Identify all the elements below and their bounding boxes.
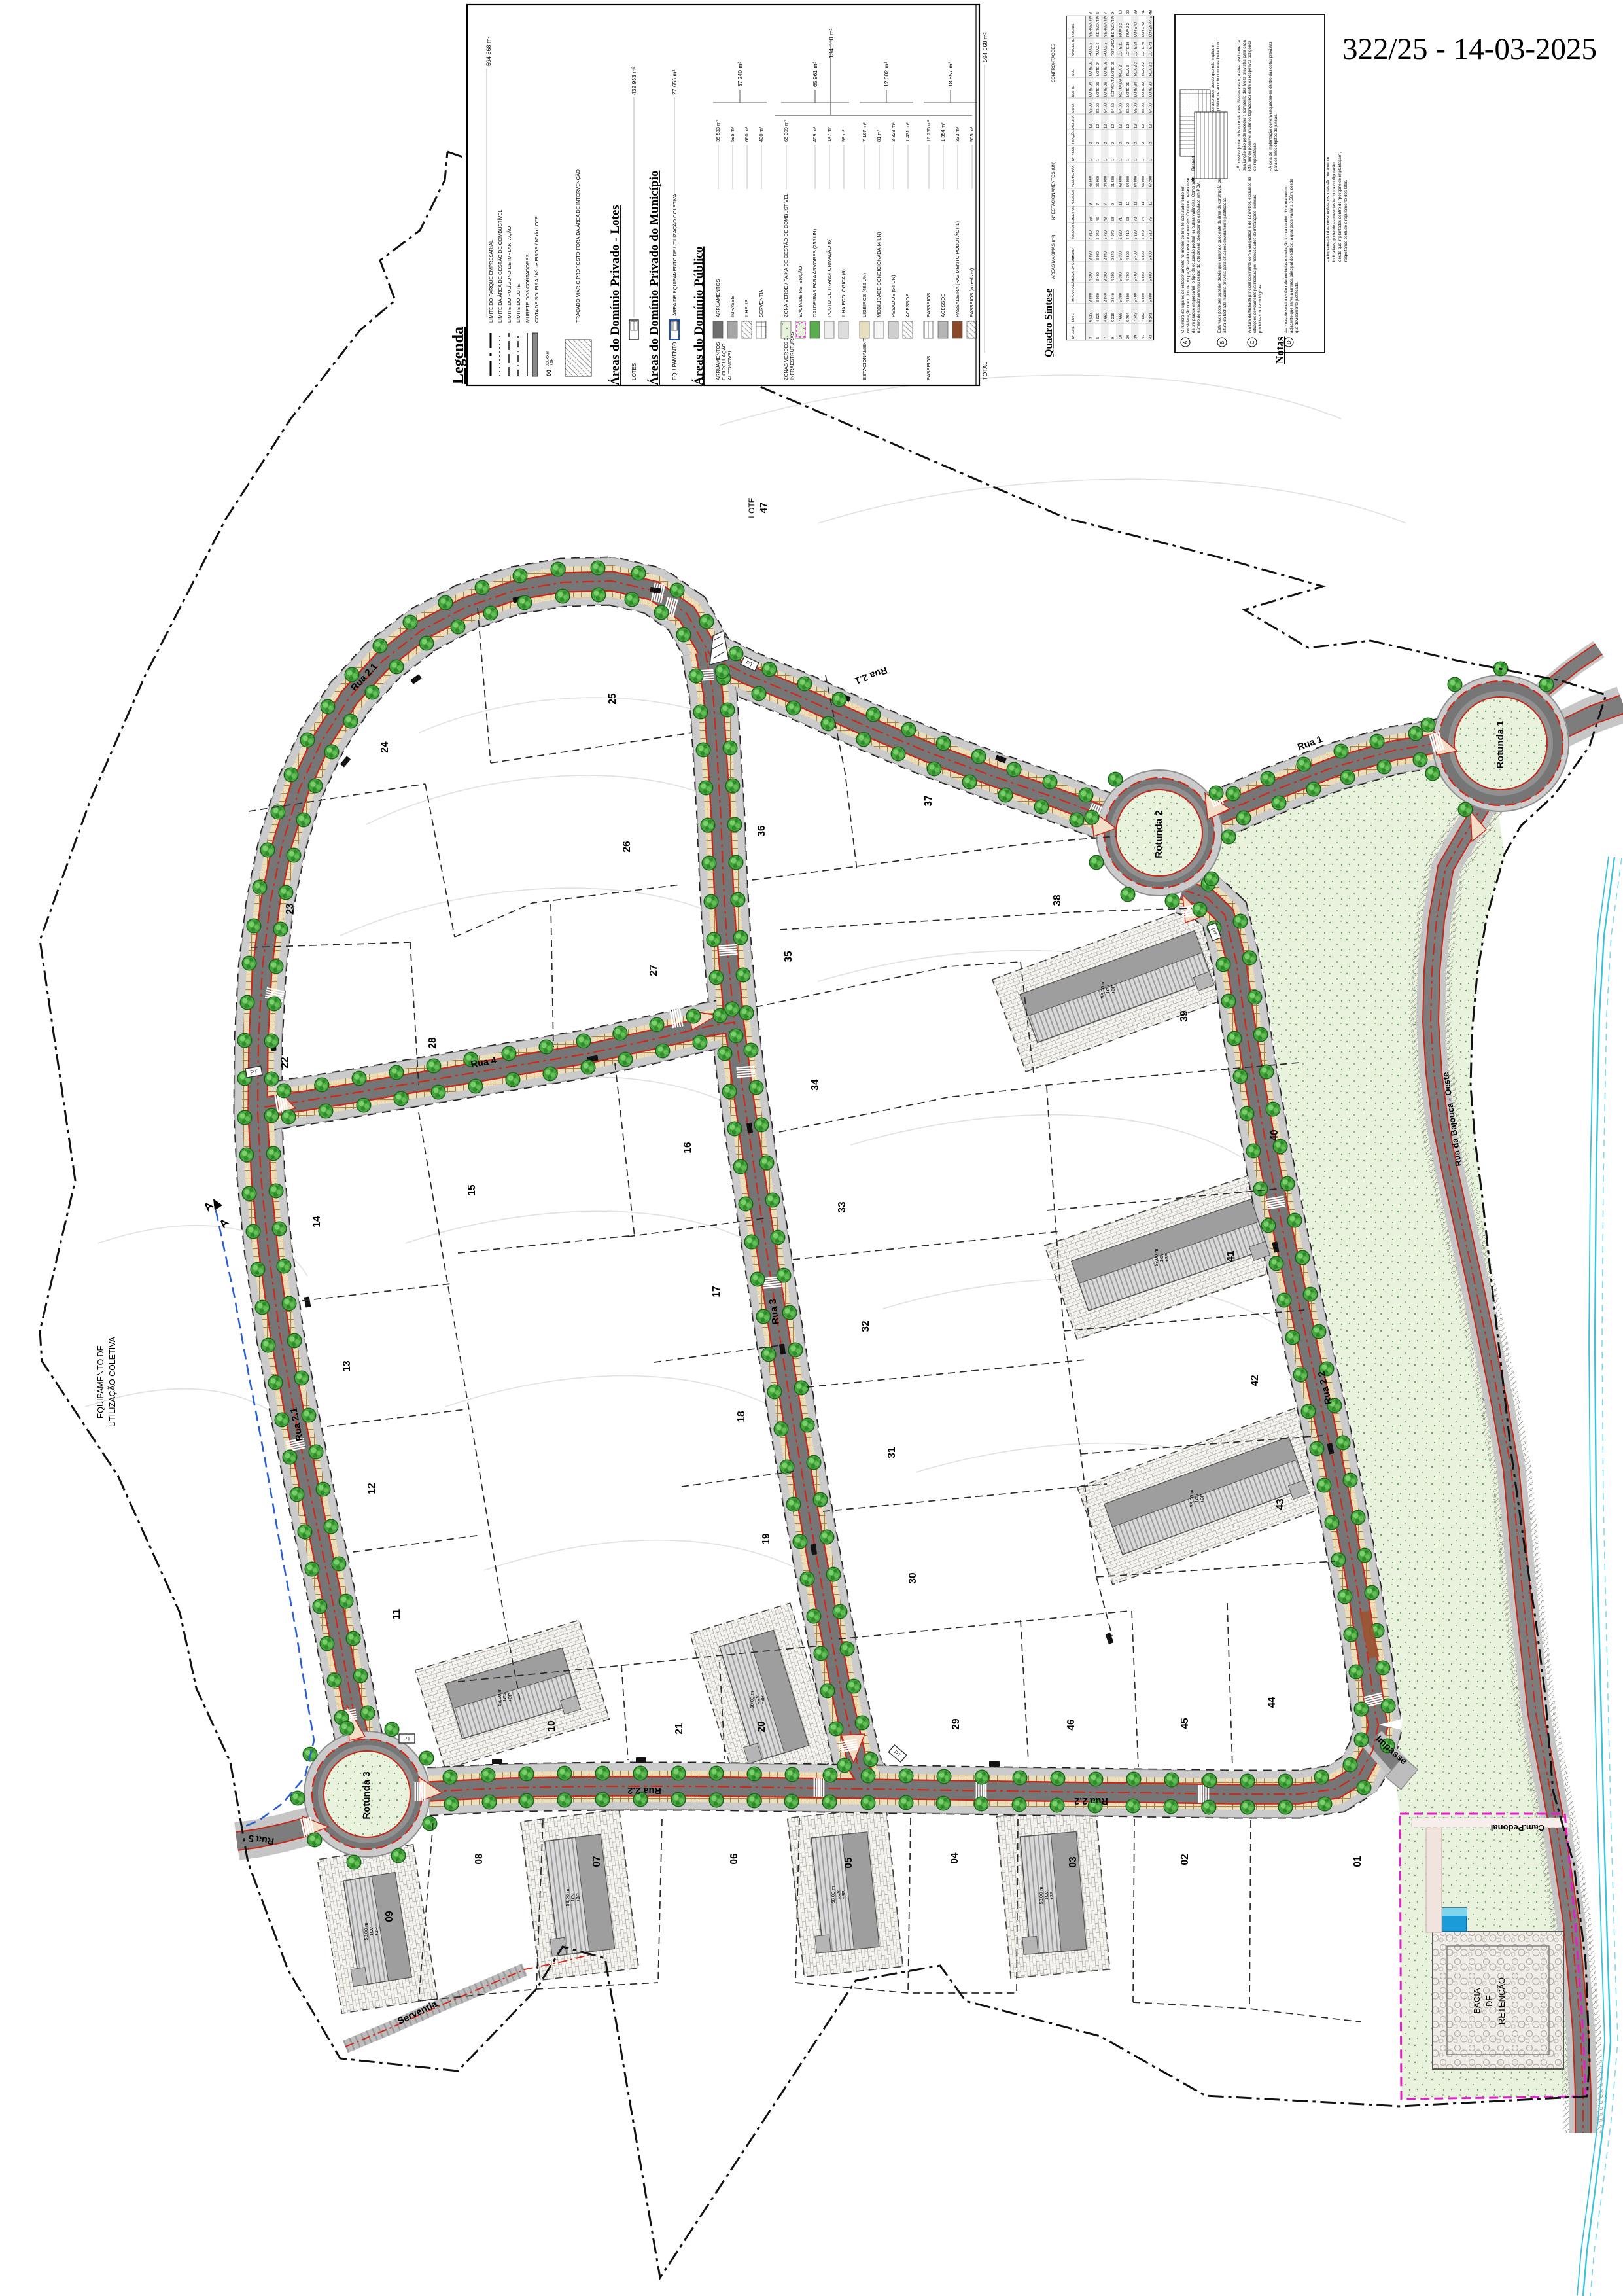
svg-text:As cotas de soleira estão refe: As cotas de soleira estão referenciadas …	[1284, 187, 1289, 333]
svg-text:ROTUNDA 3: ROTUNDA 3	[1119, 76, 1123, 97]
svg-text:53.00: 53.00	[1089, 103, 1093, 113]
svg-text:UTILIZAÇÃO COLETIVA: UTILIZAÇÃO COLETIVA	[108, 1336, 117, 1427]
svg-text:ROTUNDA 3: ROTUNDA 3	[1111, 35, 1115, 56]
svg-text:LOTE 06: LOTE 06	[1104, 82, 1108, 97]
svg-text:39: 39	[1134, 335, 1138, 339]
svg-text:+XP: +XP	[550, 358, 554, 366]
svg-text:3: 3	[1089, 337, 1093, 339]
svg-text:2: 2	[1149, 142, 1153, 144]
svg-text:1: 1	[1096, 159, 1100, 161]
svg-text:A altura da fachada principal: A altura da fachada principal confinante…	[1248, 177, 1252, 333]
svg-text:54.00: 54.00	[1119, 103, 1123, 113]
svg-text:4 500: 4 500	[1126, 251, 1130, 260]
svg-text:7: 7	[1104, 337, 1108, 339]
svg-text:5 600: 5 600	[1149, 251, 1153, 260]
svg-text:BACIA DE RETENÇÃO: BACIA DE RETENÇÃO	[797, 266, 803, 317]
svg-text:147 m²: 147 m²	[826, 126, 832, 142]
svg-text:9: 9	[1089, 203, 1093, 205]
svg-text:RUA 2.2: RUA 2.2	[1119, 23, 1123, 37]
svg-text:660 m²: 660 m²	[744, 126, 750, 142]
svg-text:+3P: +3P	[507, 1693, 513, 1702]
svg-text:+3P: +3P	[1164, 1253, 1170, 1262]
svg-text:6 764: 6 764	[1126, 313, 1130, 322]
svg-text:PT: PT	[403, 1736, 411, 1742]
svg-text:12: 12	[1111, 124, 1115, 128]
svg-text:SERVENTIA: SERVENTIA	[1089, 16, 1093, 37]
svg-text:46: 46	[1066, 1719, 1077, 1731]
svg-text:LOTE 42: LOTE 42	[1142, 22, 1145, 37]
svg-text:7 743: 7 743	[1134, 313, 1138, 322]
svg-text:43: 43	[1149, 10, 1153, 14]
svg-text:25: 25	[607, 693, 618, 705]
svg-text:39: 39	[1134, 10, 1138, 14]
svg-text:ACESSOS: ACESSOS	[940, 294, 946, 317]
svg-text:58: 58	[1111, 217, 1115, 221]
svg-text:63: 63	[1126, 217, 1130, 221]
svg-text:12: 12	[1119, 124, 1123, 128]
svg-text:54.00: 54.00	[1104, 103, 1108, 113]
svg-text:44: 44	[1266, 1697, 1278, 1708]
svg-text:PESADOS: PESADOS	[1072, 189, 1075, 205]
svg-text:1: 1	[1149, 159, 1153, 161]
svg-text:- A implantação das construçõe: - A implantação das construções nos lote…	[1326, 156, 1331, 262]
svg-text:09: 09	[384, 1911, 395, 1922]
svg-text:desde que implantadas dentro d: desde que implantadas dentro do "polígon…	[1338, 152, 1342, 262]
svg-text:01: 01	[1352, 1856, 1363, 1867]
svg-text:+3P: +3P	[575, 1893, 581, 1902]
svg-text:B: B	[1219, 341, 1225, 344]
svg-text:58.00: 58.00	[1134, 103, 1138, 113]
svg-text:número de estacionamentos dent: número de estacionamentos dentro do lote…	[1196, 181, 1201, 333]
svg-text:5 400: 5 400	[1134, 293, 1138, 302]
svg-text:SERVENTIA: SERVENTIA	[1111, 16, 1115, 37]
svg-text:2: 2	[1111, 142, 1115, 144]
svg-text:INFRAESTRUTURAS: INFRAESTRUTURAS	[789, 332, 795, 380]
svg-text:4 810: 4 810	[1089, 230, 1093, 239]
svg-text:7: 7	[1104, 12, 1108, 14]
svg-text:3 720: 3 720	[1104, 230, 1108, 239]
svg-text:40: 40	[1269, 1129, 1280, 1140]
svg-text:9: 9	[1111, 203, 1115, 205]
svg-text:6 370: 6 370	[1142, 230, 1145, 239]
svg-text:SERVENTIA: SERVENTIA	[1096, 16, 1100, 37]
svg-text:58.00: 58.00	[1142, 103, 1145, 113]
svg-text:13: 13	[341, 1360, 353, 1372]
svg-text:35: 35	[783, 951, 794, 963]
svg-text:2 840: 2 840	[1104, 293, 1108, 302]
svg-text:RUA 2.2: RUA 2.2	[1126, 23, 1130, 37]
svg-text:54 000: 54 000	[1126, 176, 1130, 187]
svg-text:594 668 m²: 594 668 m²	[485, 36, 492, 66]
svg-text:3 080: 3 080	[1096, 293, 1100, 302]
svg-text:LIGEIROS (482 UN): LIGEIROS (482 UN)	[862, 273, 867, 317]
svg-text:43: 43	[1104, 217, 1108, 221]
svg-text:Rua 2.2: Rua 2.2	[627, 1785, 661, 1795]
svg-text:LIMITE DO LOTE: LIMITE DO LOTE	[515, 284, 521, 323]
svg-text:LOTE 42: LOTE 42	[1149, 42, 1153, 56]
svg-text:ARRUAMENTOS: ARRUAMENTOS	[715, 342, 721, 380]
svg-text:RUA 2.2: RUA 2.2	[1104, 43, 1108, 56]
svg-text:E CIRCULAÇÃO: E CIRCULAÇÃO	[721, 344, 727, 380]
svg-text:LOTE 04: LOTE 04	[1089, 82, 1093, 97]
svg-text:1: 1	[1119, 159, 1123, 161]
svg-text:31 680: 31 680	[1111, 176, 1115, 187]
svg-text:36: 36	[756, 825, 767, 837]
svg-text:05: 05	[843, 1857, 854, 1869]
svg-text:2: 2	[1096, 142, 1100, 144]
svg-text:4 300: 4 300	[1111, 272, 1115, 281]
svg-text:- É possível juntar dois ou ma: - É possível juntar dois ou mais lotes. …	[1237, 40, 1242, 171]
svg-text:ZONAS VERDES E: ZONAS VERDES E	[783, 337, 789, 380]
svg-text:EQUIPAMENTO: EQUIPAMENTO	[672, 342, 678, 380]
svg-text:29: 29	[951, 1718, 962, 1730]
svg-text:5: 5	[1096, 12, 1100, 14]
svg-text:74: 74	[1142, 217, 1145, 221]
svg-text:6 013: 6 013	[1089, 313, 1093, 322]
svg-text:3 940: 3 940	[1096, 230, 1100, 239]
svg-text:respeitando contudo o regulame: respeitando contudo o regulamento dos lo…	[1344, 179, 1348, 262]
svg-text:12: 12	[1126, 124, 1130, 128]
svg-text:18 857 m²: 18 857 m²	[947, 62, 954, 87]
svg-text:RETENÇÃO: RETENÇÃO	[1497, 1977, 1507, 2024]
svg-text:24: 24	[379, 741, 391, 753]
svg-text:ÁREA DE EQUIPAMENTO DE UTILIZA: ÁREA DE EQUIPAMENTO DE UTILIZAÇÃO COLETI…	[672, 194, 678, 316]
svg-text:ILHA ECOLÓGICA (6): ILHA ECOLÓGICA (6)	[841, 269, 846, 317]
svg-text:IMPASSE: IMPASSE	[729, 296, 735, 317]
svg-text:595 m²: 595 m²	[729, 126, 735, 142]
svg-text:2 640: 2 640	[1111, 293, 1115, 302]
svg-text:1: 1	[1104, 159, 1108, 161]
svg-text:consideração que o tipo de ocu: consideração que o tipo de ocupação será…	[1186, 177, 1191, 333]
svg-text:16 265 m²: 16 265 m²	[926, 120, 932, 142]
svg-text:MURETE DOS CONTADORES: MURETE DOS CONTADORES	[525, 255, 531, 323]
svg-text:3 080: 3 080	[1096, 251, 1100, 260]
svg-text:2: 2	[1104, 142, 1108, 144]
svg-text:LOTE 02: LOTE 02	[1089, 62, 1093, 76]
svg-text:ALTURA: ALTURA	[1072, 115, 1075, 128]
svg-text:6 215: 6 215	[1111, 313, 1115, 322]
svg-text:10: 10	[1126, 202, 1130, 205]
svg-text:LIMITE DO POLÍGONO DE IMPLANTA: LIMITE DO POLÍGONO DE IMPLANTAÇÃO	[506, 226, 512, 323]
svg-text:LIMITE DO PARQUE EMPRESARIAL: LIMITE DO PARQUE EMPRESARIAL	[488, 240, 494, 323]
svg-text:LOTE 30: LOTE 30	[1149, 82, 1153, 97]
svg-text:16: 16	[682, 1142, 693, 1154]
svg-text:Rua 2.2: Rua 2.2	[1074, 1795, 1108, 1806]
svg-text:9: 9	[1111, 337, 1115, 339]
svg-text:D: D	[1286, 340, 1292, 344]
svg-text:Nº PISOS: Nº PISOS	[1072, 146, 1075, 161]
svg-text:RUA 2.2: RUA 2.2	[1096, 43, 1100, 56]
svg-text:A: A	[1183, 340, 1189, 344]
svg-text:que devidamente justificada.: que devidamente justificada.	[1295, 281, 1299, 333]
svg-text:36 960: 36 960	[1096, 176, 1100, 187]
svg-text:2: 2	[1134, 142, 1138, 144]
svg-text:PASSEIOS: PASSEIOS	[926, 293, 932, 317]
svg-text:2: 2	[1089, 142, 1093, 144]
svg-text:RUA 2.2: RUA 2.2	[1134, 62, 1138, 76]
svg-text:9: 9	[1111, 12, 1115, 14]
svg-text:12: 12	[1089, 124, 1093, 128]
svg-text:+3P: +3P	[374, 1927, 379, 1936]
svg-text:Legenda: Legenda	[450, 327, 467, 384]
svg-text:RUA 2: RUA 2	[1119, 65, 1123, 76]
svg-text:5 600: 5 600	[1149, 293, 1153, 302]
svg-text:4 200: 4 200	[1089, 272, 1093, 281]
svg-text:10: 10	[546, 1720, 557, 1731]
svg-text:7 669: 7 669	[1119, 313, 1123, 322]
svg-text:43: 43	[1275, 1498, 1286, 1510]
svg-text:43: 43	[1149, 335, 1153, 339]
svg-text:47: 47	[758, 503, 769, 514]
svg-text:NASCENTE: NASCENTE	[1072, 38, 1075, 56]
svg-text:LOTE: LOTE	[1072, 313, 1075, 322]
svg-text:333 m²: 333 m²	[954, 126, 960, 142]
svg-text:20: 20	[1126, 10, 1130, 14]
svg-text:CALDEIRAS PARA ÁRVORES (255 UN: CALDEIRAS PARA ÁRVORES (255 UN)	[812, 228, 818, 317]
svg-text:00: 00	[546, 370, 552, 376]
svg-text:06: 06	[729, 1853, 740, 1865]
svg-text:5 500: 5 500	[1142, 251, 1145, 260]
svg-text:1: 1	[1111, 159, 1115, 161]
svg-text:ÁREAS MÁXIMAS (m²): ÁREAS MÁXIMAS (m²)	[1050, 234, 1056, 279]
svg-text:COTA: COTA	[1072, 103, 1075, 113]
svg-text:4 662: 4 662	[1104, 313, 1108, 322]
svg-text:11: 11	[1119, 202, 1123, 205]
svg-text:LOTE 32: LOTE 32	[1142, 82, 1145, 97]
svg-text:63 600: 63 600	[1119, 176, 1123, 187]
svg-text:12: 12	[1096, 124, 1100, 128]
svg-text:ESTACIONAMENTO: ESTACIONAMENTO	[862, 334, 867, 380]
svg-text:75: 75	[1149, 217, 1153, 221]
svg-text:34: 34	[810, 1079, 821, 1091]
svg-text:Rotunda 1: Rotunda 1	[1495, 720, 1506, 768]
svg-text:7 982: 7 982	[1142, 313, 1145, 322]
svg-text:02: 02	[1179, 1854, 1191, 1865]
svg-text:ARRUAMENTOS: ARRUAMENTOS	[715, 279, 721, 317]
svg-text:1: 1	[1126, 159, 1130, 161]
svg-text:11: 11	[1134, 202, 1138, 205]
svg-text:C: C	[1249, 340, 1255, 344]
svg-text:LOTE 34: LOTE 34	[1134, 82, 1138, 97]
svg-text:6 180: 6 180	[1134, 230, 1138, 239]
svg-text:1 354 m²: 1 354 m²	[940, 122, 946, 142]
svg-text:12 002 m²: 12 002 m²	[883, 62, 890, 87]
svg-text:de implantação.: de implantação.	[1253, 142, 1257, 171]
svg-text:3: 3	[1089, 12, 1093, 14]
svg-text:5 400: 5 400	[1134, 272, 1138, 281]
svg-text:38: 38	[1052, 894, 1063, 906]
svg-text:altura da fachada máxima previ: altura da fachada máxima prevista para s…	[1223, 197, 1227, 333]
svg-text:12: 12	[1149, 202, 1153, 205]
svg-text:56: 56	[1089, 217, 1093, 221]
svg-text:- A cota de implantação deverá: - A cota de implantação deverá enquadrar…	[1268, 42, 1273, 171]
svg-text:33: 33	[837, 1201, 848, 1213]
svg-text:Cam.Pedonal: Cam.Pedonal	[1491, 1823, 1544, 1833]
svg-text:Rotunda 2: Rotunda 2	[1153, 810, 1164, 858]
svg-text:5 600: 5 600	[1149, 272, 1153, 281]
svg-text:CONFRONTAÇÕES: CONFRONTAÇÕES	[1050, 43, 1056, 82]
svg-text:+3P: +3P	[841, 1890, 846, 1899]
svg-text:4 700: 4 700	[1126, 272, 1130, 281]
svg-text:30: 30	[907, 1572, 918, 1583]
svg-text:sua junção não pode exceder o: sua junção não pode exceder o somatório …	[1242, 40, 1247, 171]
svg-text:14: 14	[311, 1216, 323, 1227]
svg-text:3 880: 3 880	[1089, 293, 1093, 302]
svg-text:7: 7	[1096, 203, 1100, 205]
svg-text:Quadro Síntese: Quadro Síntese	[1043, 289, 1055, 357]
svg-text:1: 1	[1089, 159, 1093, 161]
svg-text:5 410: 5 410	[1126, 230, 1130, 239]
svg-text:6 510: 6 510	[1149, 230, 1153, 239]
svg-text:Áreas do Domínio Privado - Lot: Áreas do Domínio Privado - Lotes	[608, 205, 622, 385]
svg-text:5 400: 5 400	[1134, 251, 1138, 260]
svg-text:PESADOS (54 UN): PESADOS (54 UN)	[890, 275, 896, 317]
svg-text:37: 37	[923, 795, 934, 806]
svg-text:PT: PT	[250, 1068, 259, 1076]
svg-text:TRAÇADO VIÁRIO PROPOSTO FORA D: TRAÇADO VIÁRIO PROPOSTO FORA DA ÁREA DE …	[575, 169, 581, 323]
svg-text:22: 22	[279, 1057, 290, 1068]
svg-text:SUL: SUL	[1072, 69, 1075, 76]
svg-text:produtivas ou tecnológicas: produtivas ou tecnológicas	[1258, 285, 1263, 333]
svg-text:+3P: +3P	[759, 1695, 765, 1704]
svg-text:Nº ESTACIONAMENTOS (UN): Nº ESTACIONAMENTOS (UN)	[1051, 162, 1056, 220]
svg-text:LOTE 19: LOTE 19	[1126, 42, 1130, 56]
svg-text:4 929: 4 929	[1096, 313, 1100, 322]
svg-text:65 309 m²: 65 309 m²	[783, 120, 789, 142]
svg-text:27: 27	[648, 964, 659, 976]
svg-text:5 300: 5 300	[1119, 272, 1123, 281]
svg-text:MOBILIDADE CONDICIONADA (4 UN): MOBILIDADE CONDICIONADA (4 UN)	[876, 232, 882, 317]
svg-text:41: 41	[1225, 1250, 1236, 1262]
svg-text:LOTE 38: LOTE 38	[1134, 42, 1138, 56]
svg-text:6 120: 6 120	[1119, 230, 1123, 239]
svg-text:12: 12	[1142, 124, 1145, 128]
svg-text:28: 28	[427, 1037, 438, 1049]
svg-text:15: 15	[466, 1184, 478, 1196]
svg-text:31: 31	[886, 1447, 898, 1458]
svg-text:SERVENTIA: SERVENTIA	[758, 290, 764, 317]
svg-text:LOTE 11: LOTE 11	[1119, 42, 1123, 56]
svg-text:8 141: 8 141	[1149, 313, 1153, 322]
svg-text:PASSEIOS (a realizar): PASSEIOS (a realizar)	[969, 268, 975, 317]
svg-text:35 583 m²: 35 583 m²	[715, 120, 721, 142]
svg-text:3 323 m²: 3 323 m²	[890, 122, 896, 142]
svg-text:37 240 m²: 37 240 m²	[737, 62, 743, 87]
svg-text:81 m²: 81 m²	[876, 129, 882, 142]
svg-text:21: 21	[674, 1723, 685, 1735]
svg-text:1: 1	[1142, 159, 1145, 161]
svg-text:Áreas do Domínio Público: Áreas do Domínio Público	[691, 247, 706, 385]
svg-text:2: 2	[1119, 142, 1123, 144]
svg-text:10: 10	[1119, 10, 1123, 14]
svg-text:1 431 m²: 1 431 m²	[905, 122, 911, 142]
svg-text:594 668 m²: 594 668 m²	[982, 32, 988, 62]
svg-text:134 050 m²: 134 050 m²	[828, 28, 835, 58]
svg-text:adjacente que serve a entrada: adjacente que serve a entrada principal …	[1289, 179, 1294, 333]
svg-text:SERVENTIA: SERVENTIA	[1111, 76, 1115, 97]
svg-text:BACIA: BACIA	[1472, 1988, 1482, 2013]
svg-text:AUTOMÓVEL: AUTOMÓVEL	[727, 349, 733, 380]
svg-text:indicativas, podendo as mesmas: indicativas, podendo as mesmas ter outra…	[1332, 162, 1336, 262]
svg-text:41: 41	[1142, 335, 1145, 339]
svg-text:2: 2	[1142, 142, 1145, 144]
svg-text:SERVENTIA: SERVENTIA	[1104, 16, 1108, 37]
svg-text:PASSEIOS: PASSEIOS	[926, 356, 932, 380]
svg-text:COTA DE SOLEIRA / Nº de PISOS: COTA DE SOLEIRA / Nº de PISOS / Nº do LO…	[534, 216, 540, 323]
svg-text:de um parque empresarial, o ti: de um parque empresarial, o tipo de ocup…	[1191, 176, 1196, 333]
svg-text:VOLUME MÁX.: VOLUME MÁX.	[1071, 164, 1075, 187]
svg-text:LIMITE DA ÁREA DE GESTÃO DE CO: LIMITE DA ÁREA DE GESTÃO DE COMBUSTÍVEL	[497, 209, 503, 323]
svg-text:98 m²: 98 m²	[841, 129, 846, 142]
svg-text:17: 17	[711, 1286, 722, 1297]
svg-text:FRAÇÕES: FRAÇÕES	[1071, 128, 1075, 144]
svg-text:12: 12	[1104, 124, 1108, 128]
svg-text:45: 45	[1179, 1718, 1191, 1729]
svg-text:LOTE 40: LOTE 40	[1142, 42, 1145, 56]
svg-text:LIGEIROS: LIGEIROS	[1072, 205, 1075, 221]
svg-text:5: 5	[1096, 337, 1100, 339]
svg-text:PASSADEIRA (PAVIMENTO PODOTÁCT: PASSADEIRA (PAVIMENTO PODOTÁCTIL)	[954, 221, 960, 317]
svg-text:53.00: 53.00	[1096, 103, 1100, 113]
svg-text:23: 23	[285, 903, 296, 915]
svg-text:5 500: 5 500	[1142, 272, 1145, 281]
svg-text:3 880: 3 880	[1089, 251, 1093, 260]
svg-text:66 000: 66 000	[1142, 176, 1145, 187]
svg-text:2 840: 2 840	[1104, 251, 1108, 260]
svg-text:11: 11	[391, 1608, 402, 1619]
svg-text:2: 2	[1126, 142, 1130, 144]
svg-text:11: 11	[1142, 202, 1145, 205]
svg-text:O número de lugares de estacio: O número de lugares de estacionamento no…	[1181, 186, 1185, 333]
svg-text:5 300: 5 300	[1119, 251, 1123, 260]
svg-text:54.50: 54.50	[1111, 103, 1115, 113]
svg-text:LOTE 05: LOTE 05	[1104, 62, 1108, 76]
svg-text:1: 1	[1134, 159, 1138, 161]
svg-text:64 800: 64 800	[1134, 176, 1138, 187]
svg-text:12: 12	[1134, 124, 1138, 128]
svg-text:12: 12	[1149, 124, 1153, 128]
svg-text:42: 42	[1249, 1375, 1261, 1386]
svg-text:65 961 m²: 65 961 m²	[812, 62, 818, 87]
svg-text:LOTE 40: LOTE 40	[1134, 22, 1138, 37]
svg-text:72: 72	[1134, 217, 1138, 221]
svg-text:409 m²: 409 m²	[812, 126, 818, 142]
svg-text:RUA 2.2: RUA 2.2	[1142, 62, 1145, 76]
svg-text:LOTE 06: LOTE 06	[1111, 62, 1115, 76]
svg-text:7: 7	[1104, 203, 1108, 205]
svg-text:LOTE 21: LOTE 21	[1126, 82, 1130, 97]
svg-text:03: 03	[1068, 1856, 1079, 1868]
svg-text:Este valor pode ser superior d: Este valor pode ser superior desde que c…	[1217, 175, 1222, 333]
svg-text:905 m²: 905 m²	[969, 126, 975, 142]
svg-text:54.00: 54.00	[1149, 103, 1153, 113]
svg-text:39: 39	[1179, 1010, 1190, 1022]
svg-text:432 953 m²: 432 953 m²	[631, 67, 637, 95]
svg-text:32: 32	[860, 1320, 871, 1332]
svg-text:NORTE: NORTE	[1072, 85, 1075, 97]
svg-text:+3P: +3P	[1049, 1891, 1055, 1900]
svg-text:12: 12	[366, 1483, 377, 1494]
svg-text:18: 18	[736, 1411, 747, 1422]
svg-text:LOTE 04: LOTE 04	[1096, 62, 1100, 76]
svg-text:53.00: 53.00	[1126, 103, 1130, 113]
svg-text:5 300: 5 300	[1119, 293, 1123, 302]
svg-text:34 080: 34 080	[1104, 176, 1108, 187]
svg-text:67 200: 67 200	[1149, 176, 1153, 187]
svg-text:26: 26	[621, 841, 633, 853]
svg-text:RUA 2.2: RUA 2.2	[1149, 62, 1153, 76]
svg-text:3 400: 3 400	[1096, 272, 1100, 281]
